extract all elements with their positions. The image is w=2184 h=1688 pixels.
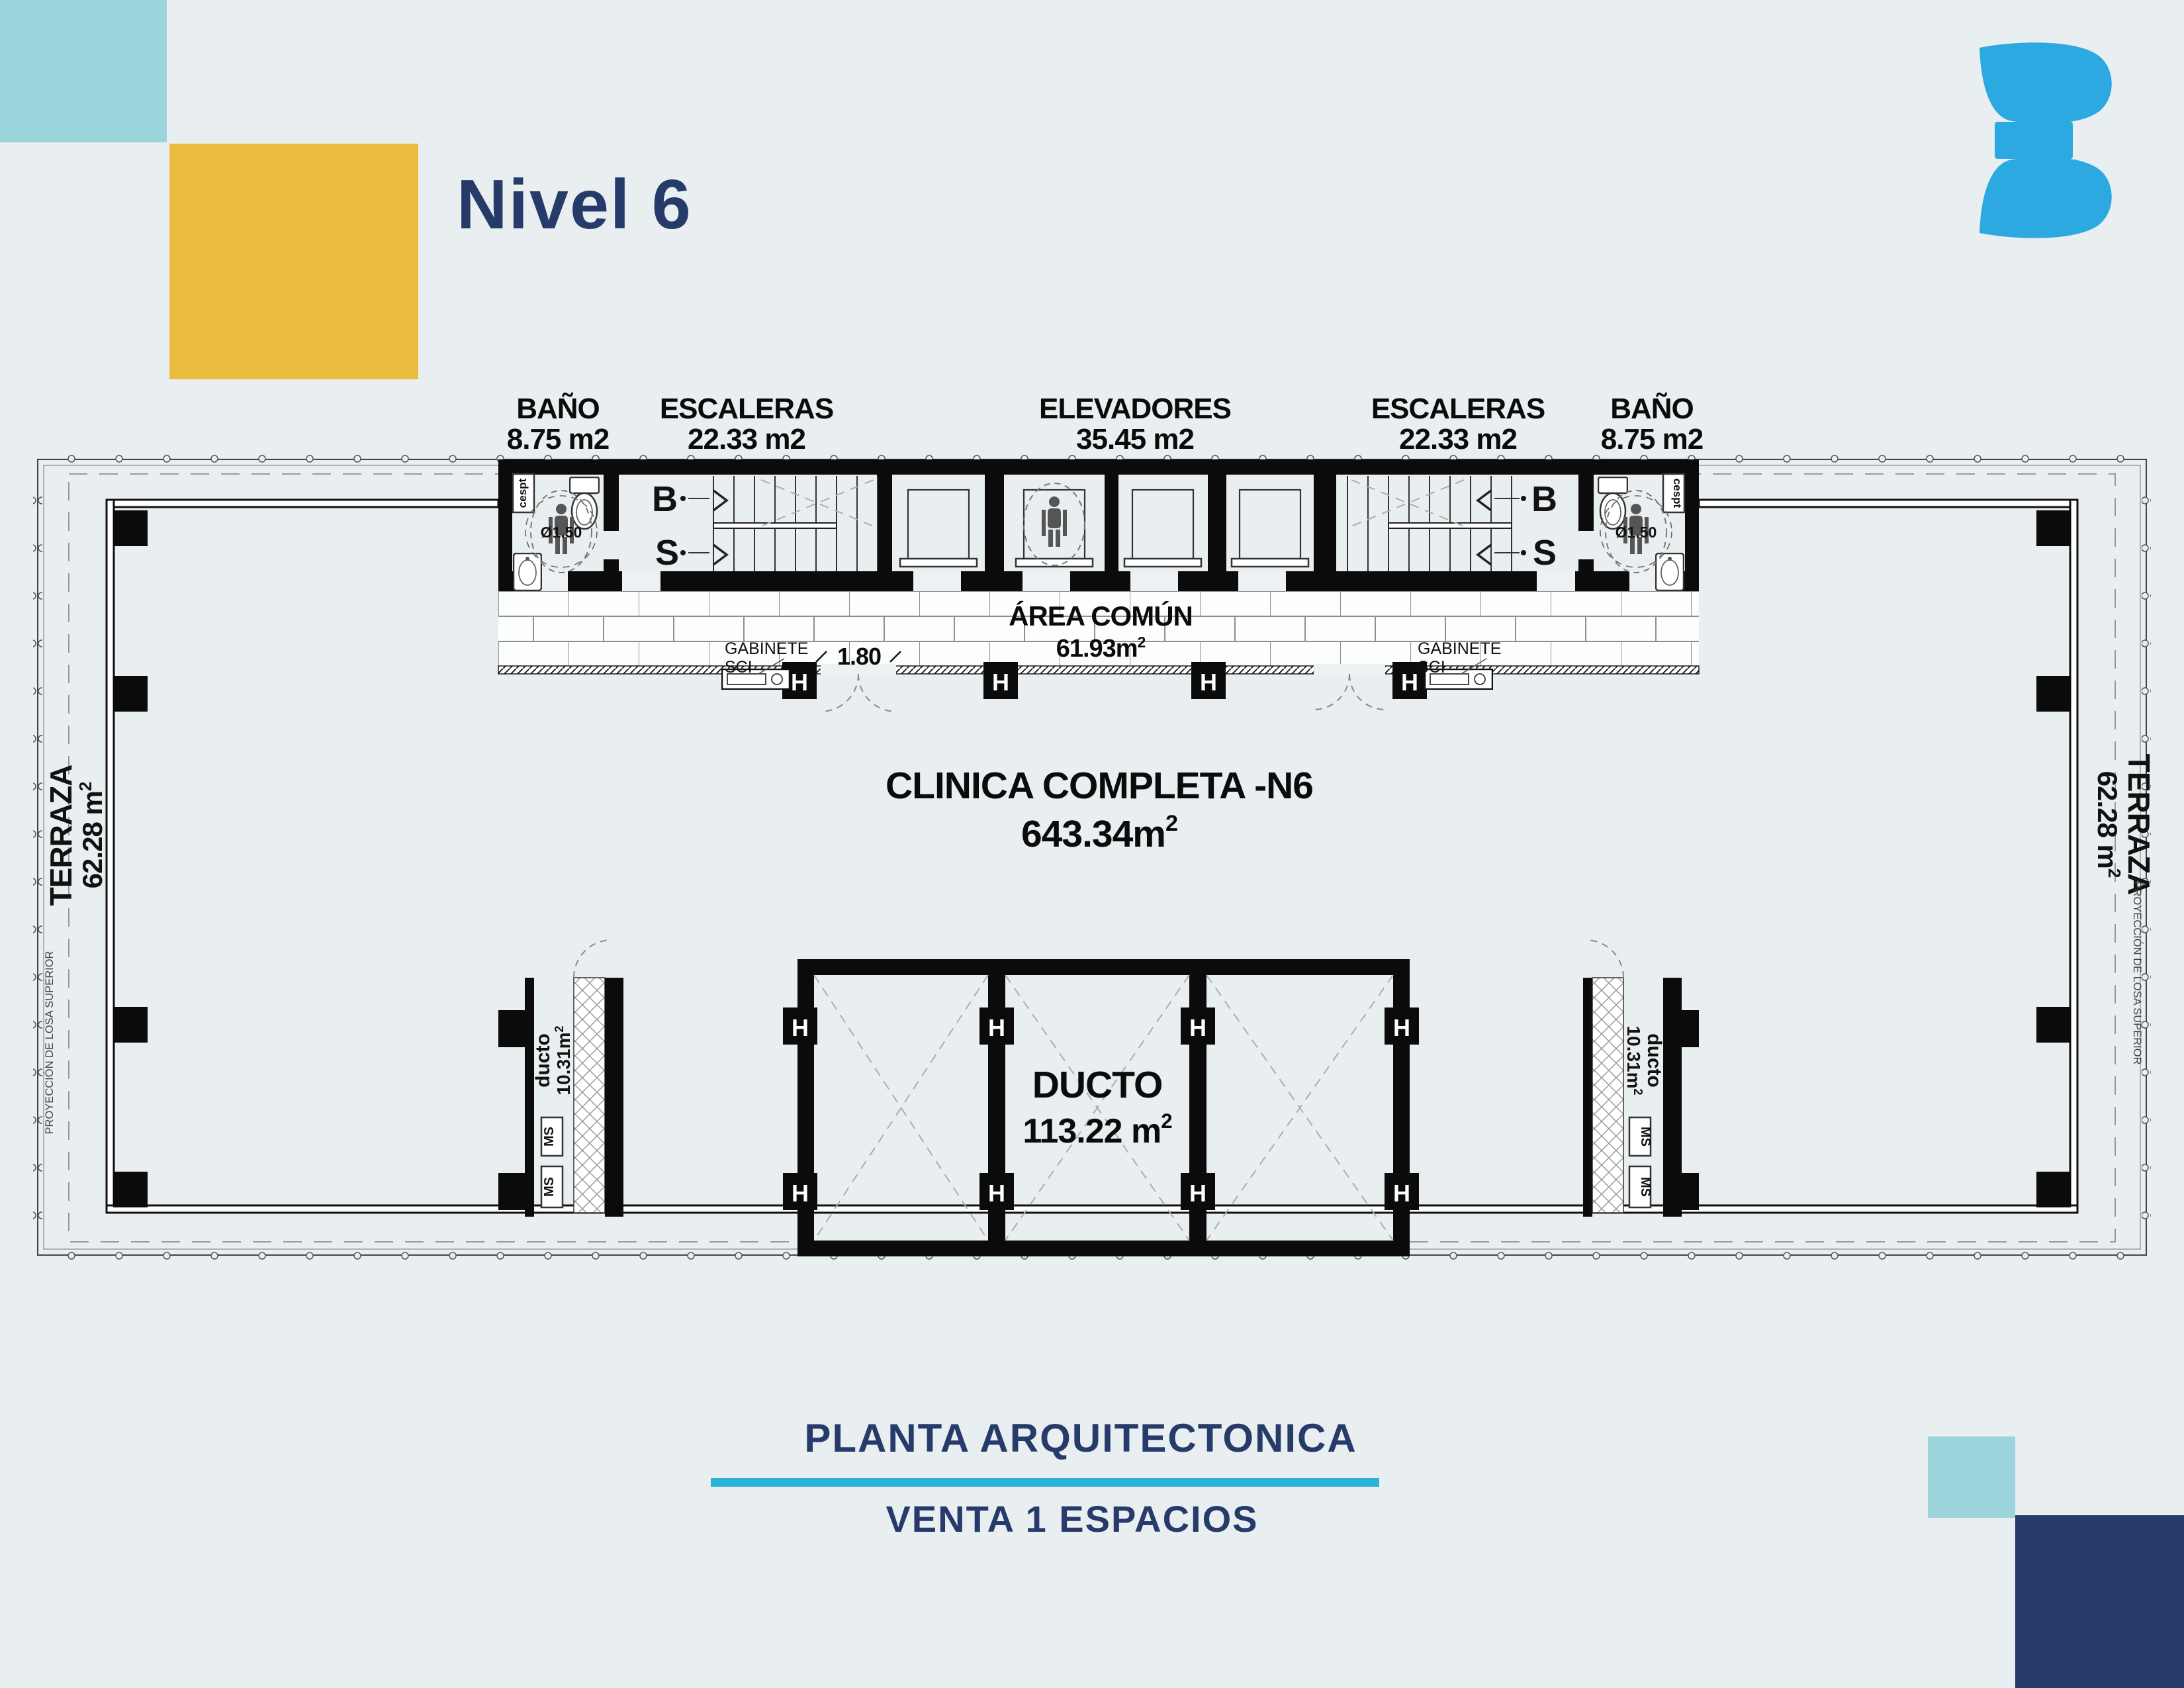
navy-square [2015, 1515, 2184, 1688]
common-area-size: 61.93m2 [1056, 633, 1146, 663]
small-duct-left: ducto10.31m2 MS MS [498, 940, 623, 1217]
door-width-dim: 1.80 [837, 643, 881, 670]
label-elevadores-name: ELEVADORES [1039, 393, 1231, 425]
corner-decoration-top-left [0, 0, 418, 379]
wheelchair-icon [1024, 483, 1085, 565]
duct-bay-diagonals [814, 975, 1393, 1241]
label-escaleras-left-area: 22.33 m2 [688, 423, 805, 455]
svg-text:TERRAZA62.28 m2: TERRAZA62.28 m2 [2092, 754, 2156, 895]
clinic-space: CLINICA COMPLETA -N6 643.34m2 [886, 765, 1313, 855]
toilet-icon [570, 477, 599, 529]
sink-icon [514, 553, 541, 590]
brand-logo-3-icon [1979, 42, 2112, 238]
duct-name: DUCTO [1032, 1064, 1163, 1106]
ms-label: MS [1638, 1177, 1653, 1197]
elevator-bank [900, 483, 1308, 567]
corner-decoration-bottom-right [1928, 1436, 2184, 1688]
duct-left-label: ducto10.31m2 [532, 1026, 574, 1096]
teal-square [0, 0, 167, 142]
label-escaleras-left-name: ESCALERAS [660, 393, 833, 425]
clinic-name: CLINICA COMPLETA -N6 [886, 765, 1313, 807]
common-area: ÁREA COMÚN 61.93m2 [498, 591, 1699, 675]
footer-divider [711, 1478, 1379, 1487]
turning-diameter-left: Ø1.50 [541, 524, 582, 541]
label-bano-right-area: 8.75 m2 [1601, 423, 1703, 455]
duct-right-label: ducto10.31m2 [1623, 1026, 1665, 1096]
stair-up-label: S [655, 533, 679, 573]
label-bano-left-name: BAÑO [516, 392, 600, 425]
label-elevadores-area: 35.45 m2 [1076, 423, 1194, 455]
turning-diameter-right: Ø1.50 [1615, 524, 1657, 541]
sci-label: SCI [1418, 658, 1445, 677]
plan-canvas: H [0, 0, 2184, 1688]
toilet-icon [1598, 477, 1627, 529]
footer-line1: PLANTA ARQUITECTONICA [804, 1416, 1357, 1460]
sci-label: SCI [725, 658, 752, 677]
label-escaleras-right-name: ESCALERAS [1371, 393, 1545, 425]
page-title: Nivel 6 [457, 165, 692, 244]
slab-projection-note: PROYECCIÓN DE LOSA SUPERIOR [43, 951, 56, 1134]
ms-label: MS [542, 1177, 557, 1197]
footer-line2: VENTA 1 ESPACIOS [886, 1498, 1258, 1540]
teal-square-small [1928, 1436, 2015, 1518]
stair-down-label: B [1531, 479, 1557, 519]
corridor-double-doors [821, 674, 1385, 712]
label-escaleras-right-area: 22.33 m2 [1399, 423, 1517, 455]
stair-up-label: S [1533, 533, 1557, 573]
ms-label: MS [1638, 1127, 1653, 1147]
svg-text:TERRAZA62.28 m2: TERRAZA62.28 m2 [44, 765, 108, 906]
stair-down-label: B [652, 479, 678, 519]
label-bano-left-area: 8.75 m2 [507, 423, 609, 455]
gabinete-label: GABINETE [1418, 639, 1501, 658]
gabinete-label: GABINETE [725, 639, 808, 658]
cespt-label-right: cespt [1671, 479, 1684, 508]
cespt-label-left: cespt [516, 478, 529, 508]
duct-size: 113.22 m2 [1023, 1109, 1172, 1150]
floorplan-page: H [0, 0, 2184, 1688]
yellow-square [169, 144, 418, 379]
sink-icon [1656, 553, 1684, 590]
small-duct-right: ducto10.31m2 MS MS [1583, 940, 1699, 1217]
terrace-label-left: TERRAZA62.28 m2 PROYECCIÓN DE LOSA SUPER… [43, 765, 108, 1135]
slab-projection-note: PROYECCIÓN DE LOSA SUPERIOR [2131, 882, 2144, 1065]
room-labels-top: BAÑO 8.75 m2 ESCALERAS 22.33 m2 ELEVADOR… [507, 392, 1703, 455]
footer-titles: PLANTA ARQUITECTONICA VENTA 1 ESPACIOS [711, 1416, 1379, 1540]
ms-label: MS [542, 1127, 557, 1147]
label-bano-right-name: BAÑO [1610, 392, 1694, 425]
common-area-name: ÁREA COMÚN [1009, 600, 1193, 632]
clinic-size: 643.34m2 [1021, 811, 1177, 855]
